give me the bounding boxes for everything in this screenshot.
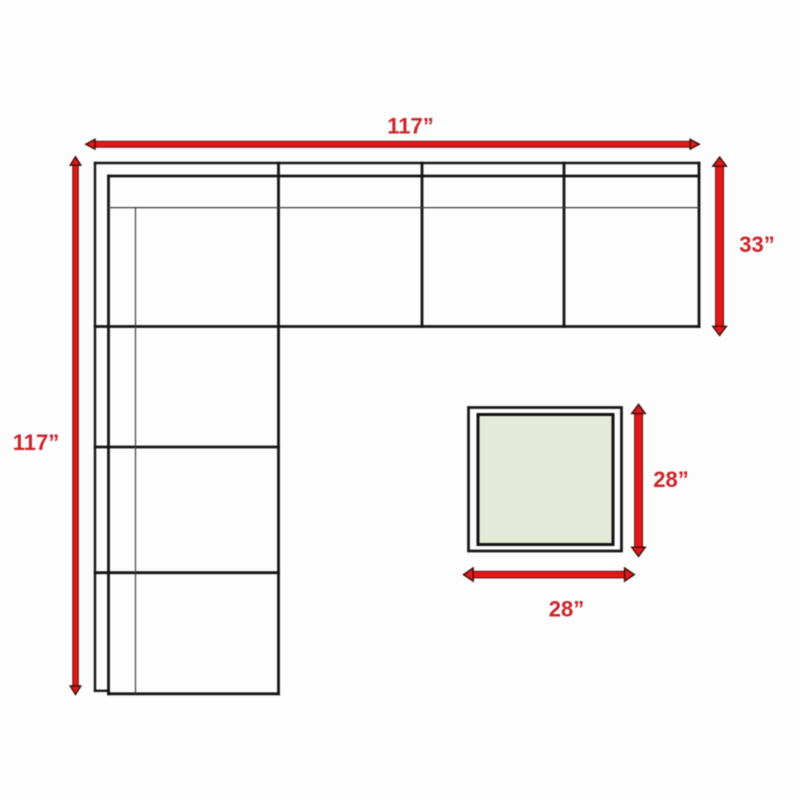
svg-text:33”: 33” [739,232,774,257]
svg-text:117”: 117” [13,430,60,455]
svg-text:117”: 117” [387,114,434,139]
svg-text:28”: 28” [653,467,688,492]
svg-text:28”: 28” [549,597,584,622]
